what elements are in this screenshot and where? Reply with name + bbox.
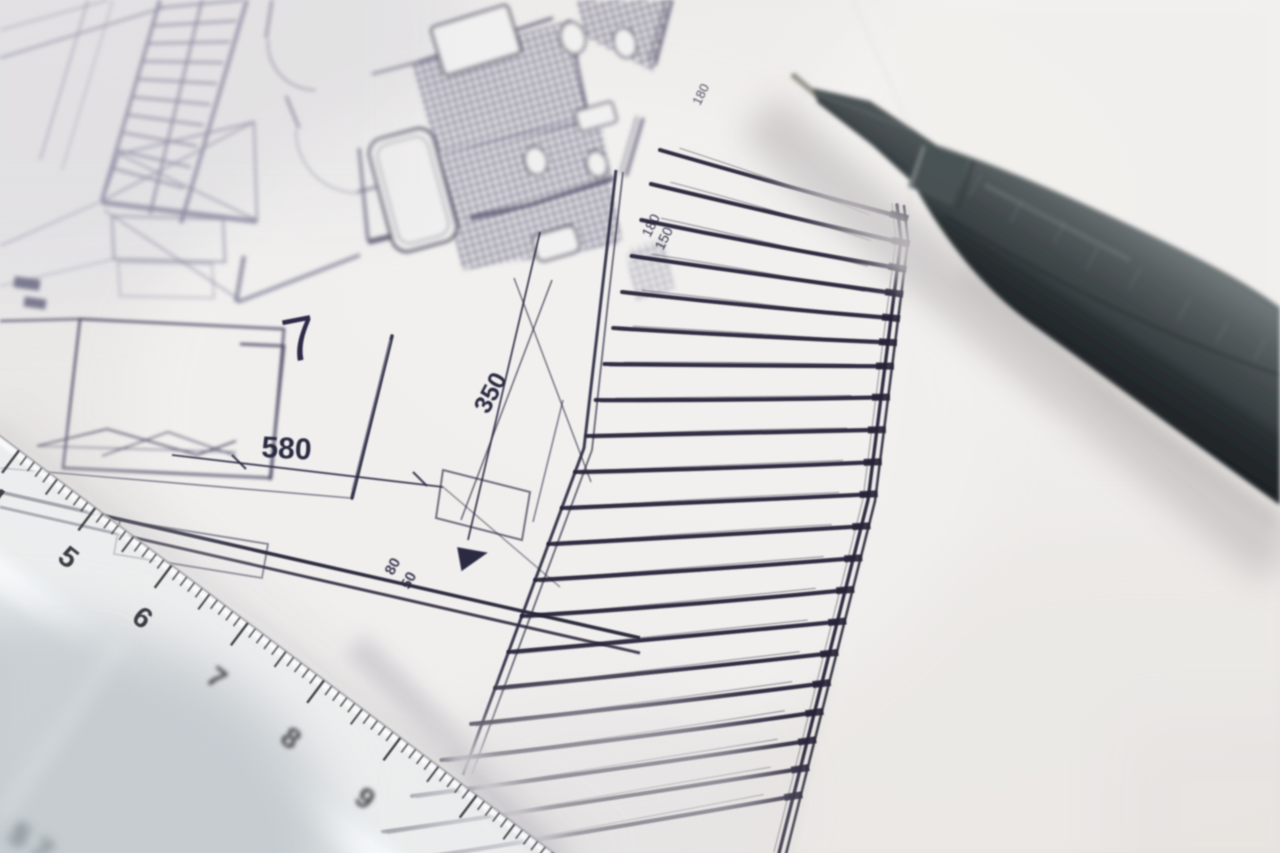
svg-text:580: 580 (261, 431, 313, 467)
